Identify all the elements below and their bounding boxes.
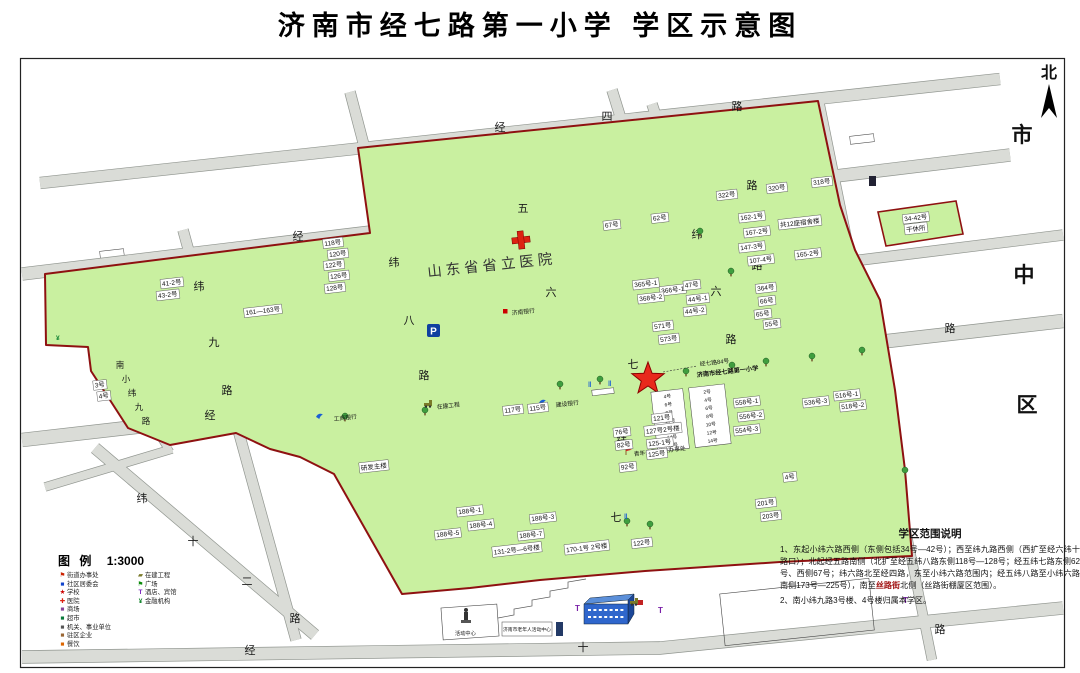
svg-text:4号: 4号 (704, 397, 712, 404)
notes-point-2: 2、南小纬九路3号楼、4号楼归属本学区。 (780, 595, 1080, 607)
road-name-char: 二 (242, 576, 253, 588)
map-label: 55号 (764, 319, 779, 329)
legend-heading: 图 例 1:3000 (58, 552, 238, 569)
bulldozer-icon: ▰ (136, 572, 145, 579)
money-icon: ¥ (136, 598, 145, 605)
map-label: 62号 (652, 213, 667, 223)
legend: 图 例 1:3000 ⚑街道办事处 ■社区居委会 ★学校 ✚医院 ■商场 ■超市… (58, 552, 238, 649)
parking-icon: P (427, 324, 440, 338)
road-name-char: 小 (122, 374, 131, 384)
road-name-char: 五 (518, 203, 529, 215)
road-name-char: 路 (747, 179, 758, 192)
map-label: 65号 (755, 309, 770, 319)
square-blue-icon: ■ (58, 581, 67, 588)
tower-building (556, 622, 563, 636)
road-name-char: 九 (135, 402, 144, 412)
flag-red-icon: ⚑ (58, 572, 67, 579)
road-name-char: 路 (419, 369, 430, 382)
svg-text:4号: 4号 (663, 393, 671, 400)
bus-stop-icon: ‖ (624, 514, 627, 521)
road-name-char: 经 (293, 230, 304, 243)
road-name-char: 四 (602, 111, 613, 123)
money-icon: ¥ (56, 335, 60, 342)
square-purple-icon: ■ (58, 606, 67, 613)
road-name-char: 路 (142, 416, 151, 426)
svg-text:10号: 10号 (706, 421, 717, 428)
svg-text:14号: 14号 (707, 438, 718, 445)
road-name-char: 纬 (389, 256, 400, 269)
svg-text:12号: 12号 (706, 430, 717, 437)
road-name-char: 路 (945, 322, 956, 335)
district-notes: 学区范围说明 1、东起小纬六路西侧（东侧包括34号—42号）；西至纬九路西侧（西… (780, 526, 1080, 607)
road-name-char: 十 (188, 534, 199, 548)
map-label: 4号 (784, 472, 795, 481)
legend-scale: 1:3000 (107, 554, 144, 568)
road-name-char: 七 (611, 511, 622, 524)
map-label: 92号 (620, 462, 635, 472)
legend-right-column: ▰在建工程 ⚑广场 T酒店、宾馆 ¥金融机构 (136, 572, 176, 649)
star-red-icon: ★ (58, 589, 67, 596)
notes-red-street: 丝路街 (876, 581, 900, 590)
hotel-t-icon: T (575, 604, 580, 613)
map-label: 76号 (614, 427, 629, 437)
senior-center-label: 济南市老年人活动中心 (503, 626, 551, 633)
road-name-char: 九 (209, 336, 220, 349)
svg-text:区: 区 (1017, 394, 1038, 417)
map-label: 66号 (759, 296, 774, 306)
map-label: 3号 (94, 380, 105, 389)
north-label: 北 (1041, 64, 1057, 82)
road-name-char: 十 (578, 640, 589, 654)
map-label: 67号 (604, 220, 619, 230)
road-name-char: 路 (290, 612, 301, 625)
svg-text:6号: 6号 (664, 402, 672, 409)
road-name-char: 路 (726, 333, 737, 346)
square-gray-icon: ■ (58, 624, 67, 631)
road-name-char: 纬 (137, 492, 148, 505)
svg-text:8号: 8号 (706, 413, 714, 420)
road-name-char: 六 (711, 285, 722, 298)
road-name-char: 经 (495, 121, 506, 134)
square-green-icon: ■ (58, 615, 67, 622)
notes-body: 1、东起小纬六路西侧（东侧包括34号—42号）；西至纬九路西侧（西扩至经六纬十路… (780, 544, 1080, 607)
page: 济南市经七路第一小学 学区示意图 (0, 0, 1080, 673)
bus-stop-icon: ‖ (588, 382, 591, 389)
map-label: 82号 (616, 440, 631, 450)
road-name-char: 七 (628, 358, 639, 371)
svg-text:市: 市 (1012, 123, 1033, 147)
activity-center-label: 活动中心 (455, 629, 476, 637)
flag-green-icon: ⚑ (136, 581, 145, 588)
bank-logo-icon (503, 309, 508, 314)
road-name-char: 经 (205, 409, 216, 422)
road-name-char: 经 (245, 644, 256, 657)
road-name-char: 八 (404, 315, 415, 327)
hotel-t-icon: T (136, 589, 145, 596)
legend-left-column: ⚑街道办事处 ■社区居委会 ★学校 ✚医院 ■商场 ■超市 ■机关、事业单位 ■… (58, 572, 136, 649)
square-orange-icon: ■ (58, 641, 67, 648)
office-tower-icon (869, 176, 876, 186)
map-label: 47号 (684, 280, 699, 290)
road-name-char: 纬 (128, 388, 137, 398)
map-label: 4号 (98, 391, 109, 400)
svg-text:P: P (430, 327, 437, 338)
road-name-char: 南 (116, 360, 125, 370)
square-brown-icon: ■ (58, 632, 67, 639)
road-name-char: 纬 (194, 280, 205, 293)
road-name-char: 六 (546, 286, 557, 299)
svg-text:中: 中 (1014, 264, 1035, 287)
hotel-t-icon: T (658, 606, 663, 615)
bus-stop-icon: ‖ (608, 381, 611, 388)
svg-text:6号: 6号 (705, 405, 713, 412)
road-name-char: 路 (935, 623, 946, 636)
svg-text:2号: 2号 (703, 389, 711, 396)
cross-red-icon: ✚ (58, 598, 67, 605)
road-name-char: 路 (732, 100, 743, 113)
notes-heading: 学区范围说明 (780, 526, 1080, 541)
road-name-char: 路 (222, 384, 233, 397)
